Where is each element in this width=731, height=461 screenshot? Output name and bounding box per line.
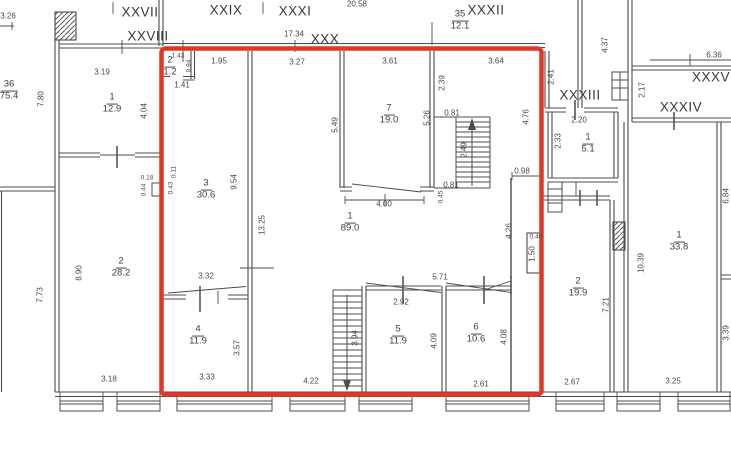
highlighted-apartment-outline xyxy=(162,49,542,395)
staircase-top xyxy=(434,117,490,188)
door-ticks xyxy=(117,100,674,312)
hatched-wall-block xyxy=(55,12,76,40)
floor-plan-canvas: XXVIIXXIXXXVIIIXXXIXXXXXXIIXXXIIIXXXIVXX… xyxy=(0,0,731,461)
window-sills xyxy=(60,401,730,411)
stairs-up-arrow-icon xyxy=(468,118,476,130)
staircase-bottom xyxy=(333,290,362,392)
floorplan-walls-drawing xyxy=(0,0,731,461)
service-ladders xyxy=(548,72,628,212)
hatched-chimney-block xyxy=(613,222,625,250)
outer-walls xyxy=(0,0,731,397)
